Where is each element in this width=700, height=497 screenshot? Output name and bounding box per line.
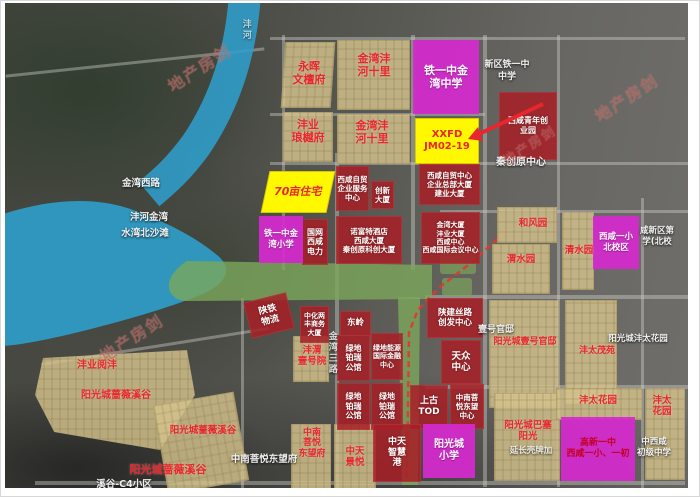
label-futai-garden-mid: 沣太花园: [575, 396, 621, 407]
label-qiangwei-valley-2: 阳光城蔷薇溪谷: [165, 426, 241, 437]
label-qiangwei-valley-1: 阳光城蔷薇溪谷: [73, 390, 159, 402]
frame-top: [0, 0, 700, 3]
block-lvdi-borui-3: 绿地 铂瑞 公馆: [371, 383, 403, 430]
block-yihao-guandi: [489, 300, 559, 408]
block-zhongtian-smart-port: 中天 智慧 港: [373, 424, 421, 482]
parcel-70mu-residential: 70亩住宅: [262, 172, 335, 212]
park-patch: [442, 278, 472, 296]
block-chuangxin-tower: 创新 大厦: [371, 181, 394, 209]
label-fengye-langyuefu: 沣业 琅樾府: [285, 119, 331, 144]
block-lvdi-borui-2: 绿地 铂瑞 公馆: [337, 383, 370, 430]
road-label-jinwan-west: 金湾西路: [112, 178, 170, 190]
poi-label-shell-station: 延长壳牌加: [504, 446, 558, 457]
school-tieyizhong-middle: 铁一中金 湾中学: [413, 40, 479, 114]
block-dongling: 东岭: [340, 311, 371, 336]
poi-label-zhongnan-dongwangfu: 中南菩悦东望府: [226, 454, 302, 466]
school-tieyizhong-primary: 铁一中金 湾小学: [259, 216, 303, 263]
poi-label-yihao-guandi: 壹号官邸: [472, 325, 520, 337]
label-futai-garden-right: 沣太 花园: [649, 396, 675, 418]
block-jinwan-tower-cluster: 金湾大厦 沣业大厦 西咸中心 西咸国际会议中心: [421, 212, 480, 264]
water-label-bay: 沣河金湾: [122, 212, 176, 224]
poi-label-tieyizhong-frag: 新区铁一中 中学: [480, 60, 534, 83]
label-jinwan-shili-north: 金湾沣 河十里: [344, 53, 404, 78]
school-xixian-primary-north: 西咸一小 北校区: [593, 216, 639, 269]
parcel-xxfd-jm02-19: XXFD JM02-19: [416, 119, 478, 163]
label-zhongnan-dongwangfu: 中南 菩悦 东望府: [298, 428, 326, 459]
label-weishui-garden: 渭水园: [503, 255, 539, 266]
label-qingshui-garden: 清水园: [563, 246, 595, 257]
poi-label-futai-garden: 阳光城沣太花园: [603, 334, 673, 345]
frame-left: [0, 0, 5, 497]
label-qiangwei-valley-3: 阳光城蔷薇溪谷: [120, 464, 216, 477]
label-futai-maoyuan: 沣太茂苑: [577, 346, 617, 356]
poi-label-chuji-frag: 中西咸 初级中学: [633, 437, 675, 459]
school-gaoxin-combo: 高新一中 西咸一小、一初: [561, 417, 635, 481]
block-shanggu-tod: 上古 TOD: [410, 385, 448, 429]
riverside-park-band: [169, 261, 432, 301]
label-zhongtian-jingyue: 中天 景悦: [341, 447, 369, 469]
poi-label-xigu-c4: 溪谷-C4小区: [88, 479, 160, 488]
fenghe-river: [149, 3, 245, 194]
map-canvas: 西咸青年创 业园 西咸自贸 企业服务 中心 创新 大厦 西咸自贸中心 企业总部大…: [5, 3, 688, 488]
real-estate-satellite-map: 西咸青年创 业园 西咸自贸 企业服务 中心 创新 大厦 西咸自贸中心 企业总部大…: [0, 0, 700, 497]
block-zhongnan-center: 中南菩 悦东望 中心: [450, 384, 484, 429]
block-zimao-service-center: 西咸自贸 企业服务 中心: [336, 166, 369, 211]
block-lvdi-energy: 绿地能源 国际金融 中心: [371, 333, 403, 380]
road-label-jinwan-3rd: 金湾三路: [325, 331, 337, 375]
block-weishui-garden: [492, 244, 550, 294]
block-guowang-power: 国网 西咸 电力: [302, 219, 328, 265]
label-yonghui-wentanfu: 永晖 文檀府: [286, 61, 332, 86]
block-lvdi-borui-1: 绿地 铂瑞 公馆: [337, 335, 370, 381]
label-hefeng-garden: 和风园: [513, 219, 553, 230]
water-label-beach: 水湾北沙滩: [112, 228, 178, 240]
frame-right: [688, 0, 700, 497]
label-yihao-guandi: 阳光城壹号官邸: [490, 337, 560, 347]
frame-bottom: [0, 488, 700, 497]
block-novotel-cluster: 诺富特酒店 西咸大厦 秦创原科创大厦: [336, 216, 402, 264]
poi-label-xixiao-frag: 咸新区第 学(北校: [637, 226, 677, 248]
block-zimao-center: 西咸自贸中心 企业总部大厦 建业大厦: [419, 164, 480, 205]
label-jinwan-shili-south: 金湾沣 河十里: [342, 120, 402, 145]
label-basai-sunshine: 阳光城巴塞 阳光: [499, 421, 557, 443]
water-label-river: 沣河: [239, 19, 251, 41]
school-yangguangcheng-primary: 阳光城 小学: [423, 424, 475, 478]
block-tianzhong-center: 天众 中心: [441, 340, 481, 384]
